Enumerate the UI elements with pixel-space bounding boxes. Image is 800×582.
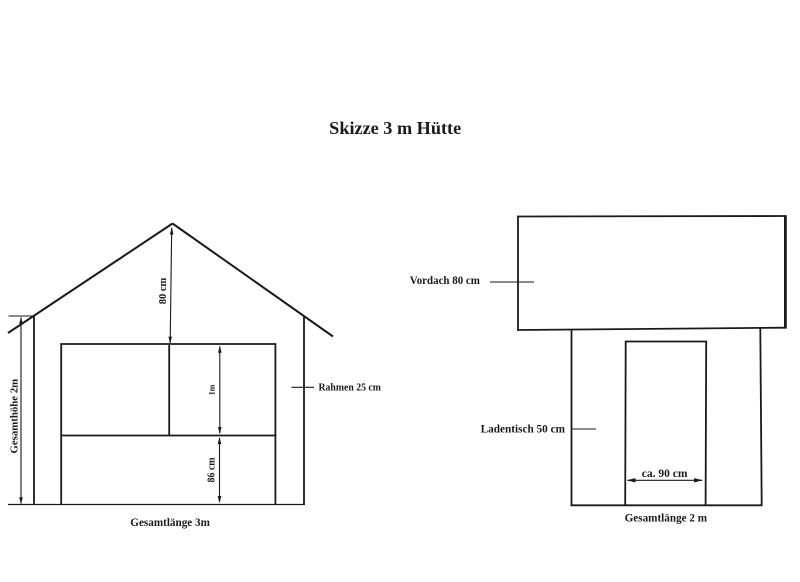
svg-text:Gesamthöhe 2m: Gesamthöhe 2m [9,379,21,454]
svg-text:Skizze 3 m Hütte: Skizze 3 m Hütte [329,118,461,138]
svg-text:Vordach 80 cm: Vordach 80 cm [410,275,481,287]
svg-text:Rahmen 25 cm: Rahmen 25 cm [319,383,382,394]
svg-text:Gesamtlänge 2 m: Gesamtlänge 2 m [625,510,708,524]
svg-text:80 cm: 80 cm [157,278,169,305]
svg-text:86 cm: 86 cm [207,457,218,482]
svg-text:Ladentisch 50 cm: Ladentisch 50 cm [481,424,566,436]
svg-text:1m: 1m [206,384,216,395]
svg-text:ca. 90 cm: ca. 90 cm [642,468,688,480]
svg-text:Gesamtlänge 3m: Gesamtlänge 3m [130,515,210,529]
